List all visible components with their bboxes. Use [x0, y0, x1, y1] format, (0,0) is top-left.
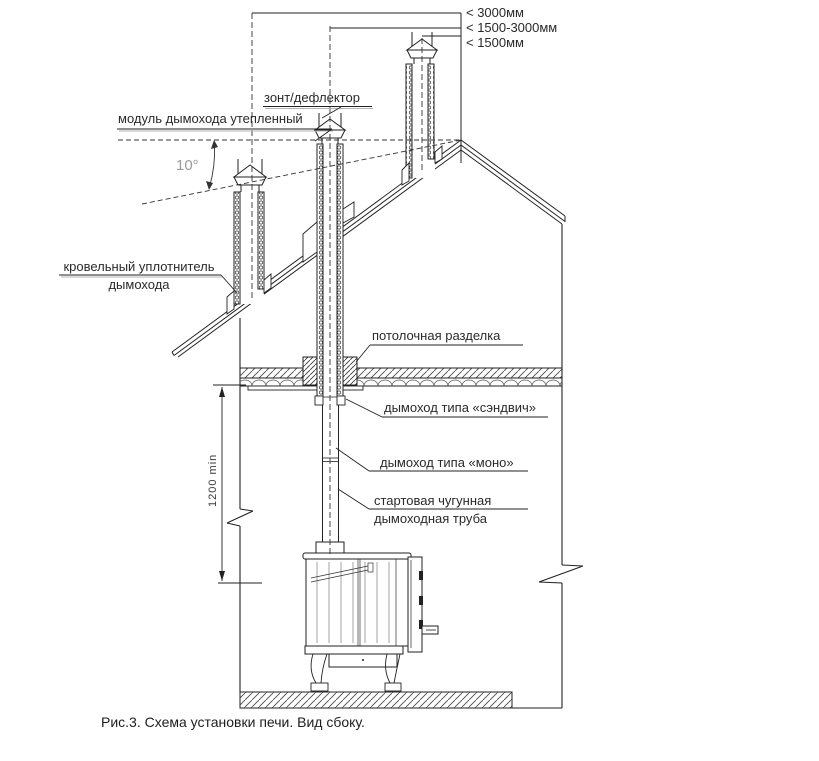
- roof-flashing: [303, 222, 317, 262]
- angle-arc: [206, 140, 218, 190]
- floor: [240, 692, 512, 708]
- figure-caption: Рис.3. Схема установки печи. Вид сбоку.: [101, 715, 365, 729]
- chimney-left: [227, 159, 271, 314]
- clearance-label-1500-3000: < 1500-3000мм: [466, 21, 557, 35]
- stove: [303, 542, 438, 691]
- chimney-right: [402, 32, 442, 185]
- sandwich-collar: [315, 396, 323, 405]
- label-underlines: [59, 107, 548, 510]
- roof-flashing: [435, 146, 442, 163]
- label-sandwich-chimney: дымоход типа «сэндвич»: [384, 401, 536, 415]
- stove-door-hinges: [419, 571, 423, 629]
- label-angle: 10°: [176, 159, 199, 173]
- label-mono-chimney: дымоход типа «моно»: [380, 456, 514, 470]
- roof-flashing: [402, 163, 409, 185]
- label-insulated-module: модуль дымохода утепленный: [118, 112, 303, 126]
- stove-installation-diagram: < 3000мм < 1500-3000мм < 1500мм зонт/деф…: [0, 0, 819, 761]
- height-dimension: [213, 385, 262, 583]
- ceiling-under-board: [248, 386, 363, 390]
- label-roof-seal-line1: кровельный уплотнитель: [56, 260, 222, 274]
- label-cast-iron-pipe-line1: стартовая чугунная: [374, 494, 491, 508]
- right-wall: [508, 224, 583, 708]
- height-dimension-label: 1200 min: [206, 454, 220, 507]
- clearance-label-1500: < 1500мм: [466, 36, 524, 50]
- label-ceiling-cutout: потолочная разделка: [372, 329, 500, 343]
- roof-seal-flashing: [227, 291, 234, 314]
- label-roof-seal-line2: дымохода: [56, 278, 222, 292]
- label-cast-iron-pipe-line2: дымоходная труба: [374, 512, 487, 526]
- clearance-label-3000: < 3000мм: [466, 6, 524, 20]
- chimney-main: [303, 113, 354, 542]
- sandwich-collar: [337, 396, 345, 405]
- mono-pipe: [323, 405, 339, 542]
- label-cap: зонт/дефлектор: [264, 91, 360, 105]
- label-roof-seal: кровельный уплотнитель дымохода: [56, 260, 222, 292]
- ceiling: [240, 368, 562, 386]
- roof: [172, 140, 565, 357]
- stove-base: [305, 646, 403, 654]
- stove-top-plate: [303, 553, 411, 559]
